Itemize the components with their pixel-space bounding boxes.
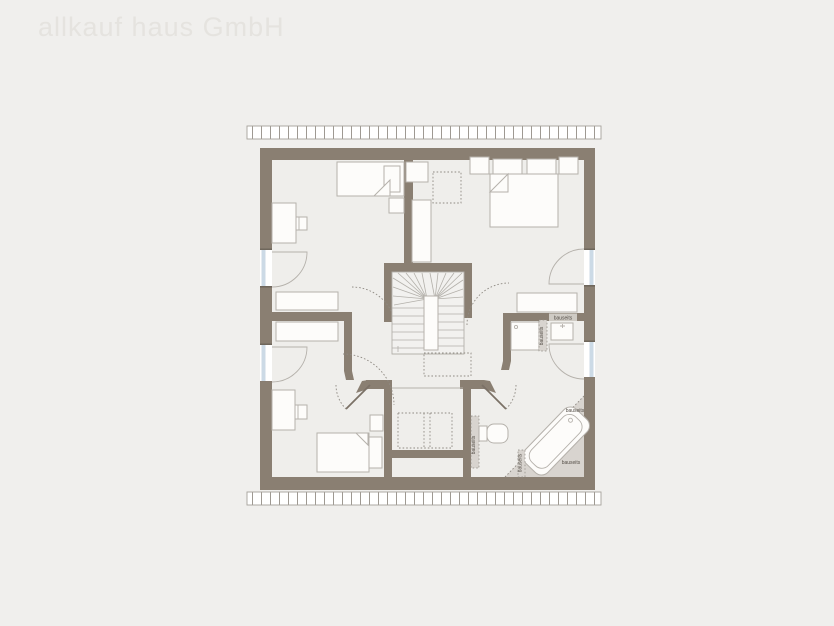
nightstand [370,415,383,431]
cabinet [406,162,428,182]
jamb-middle-right [503,321,511,361]
wardrobe [412,200,431,262]
onsite-label: bauseits [554,316,573,322]
stairwell-wall-north [384,263,472,272]
jamb-middle-left [344,321,352,371]
desk [272,390,295,430]
onsite-label: bauseits [518,453,524,472]
onsite-label: bauseits [562,460,581,466]
chair [295,405,307,419]
sideboard [276,322,338,341]
winder-staircase [392,272,464,354]
jamb-hall-right [460,380,484,389]
stairwell-wall-west [384,272,392,322]
wall-south [260,477,595,490]
stair-spine [424,296,438,350]
wall-west-3 [260,381,272,490]
stairwell-wall-east [464,272,472,318]
pillow [369,437,382,468]
room-middle-left [276,322,338,341]
onsite-label: bauseits [539,326,545,345]
onsite-label: bauseits [566,408,585,414]
wall-west-1 [260,148,272,250]
floor-plan-page: allkauf haus GmbH [0,0,834,626]
wall-middle-left [272,312,352,321]
shower [511,322,539,350]
chair [296,217,307,230]
onsite-label: bauseits [471,435,477,454]
nightstand-left [470,157,489,174]
desk [272,203,296,243]
floor-plan-drawing: bauseits bauseits bauseits bauseits baus… [0,0,834,626]
nightstand-right [559,157,578,174]
wall-storage-west [384,382,392,477]
pillow-left [493,159,522,174]
sideboard [276,292,338,310]
sideboard [517,293,577,312]
wall-north [260,148,595,160]
roof-eaves-top [247,126,601,139]
wall-east-2 [584,285,595,342]
wall-west-2 [260,286,272,345]
wall-storage-south [392,450,463,458]
roof-eaves-bottom [247,492,601,505]
wall-east-1 [584,148,595,250]
washbasin [551,323,573,340]
pillow-right [527,159,556,174]
wall-storage-east [463,382,471,477]
toilet [479,424,508,443]
nightstand [389,198,404,213]
